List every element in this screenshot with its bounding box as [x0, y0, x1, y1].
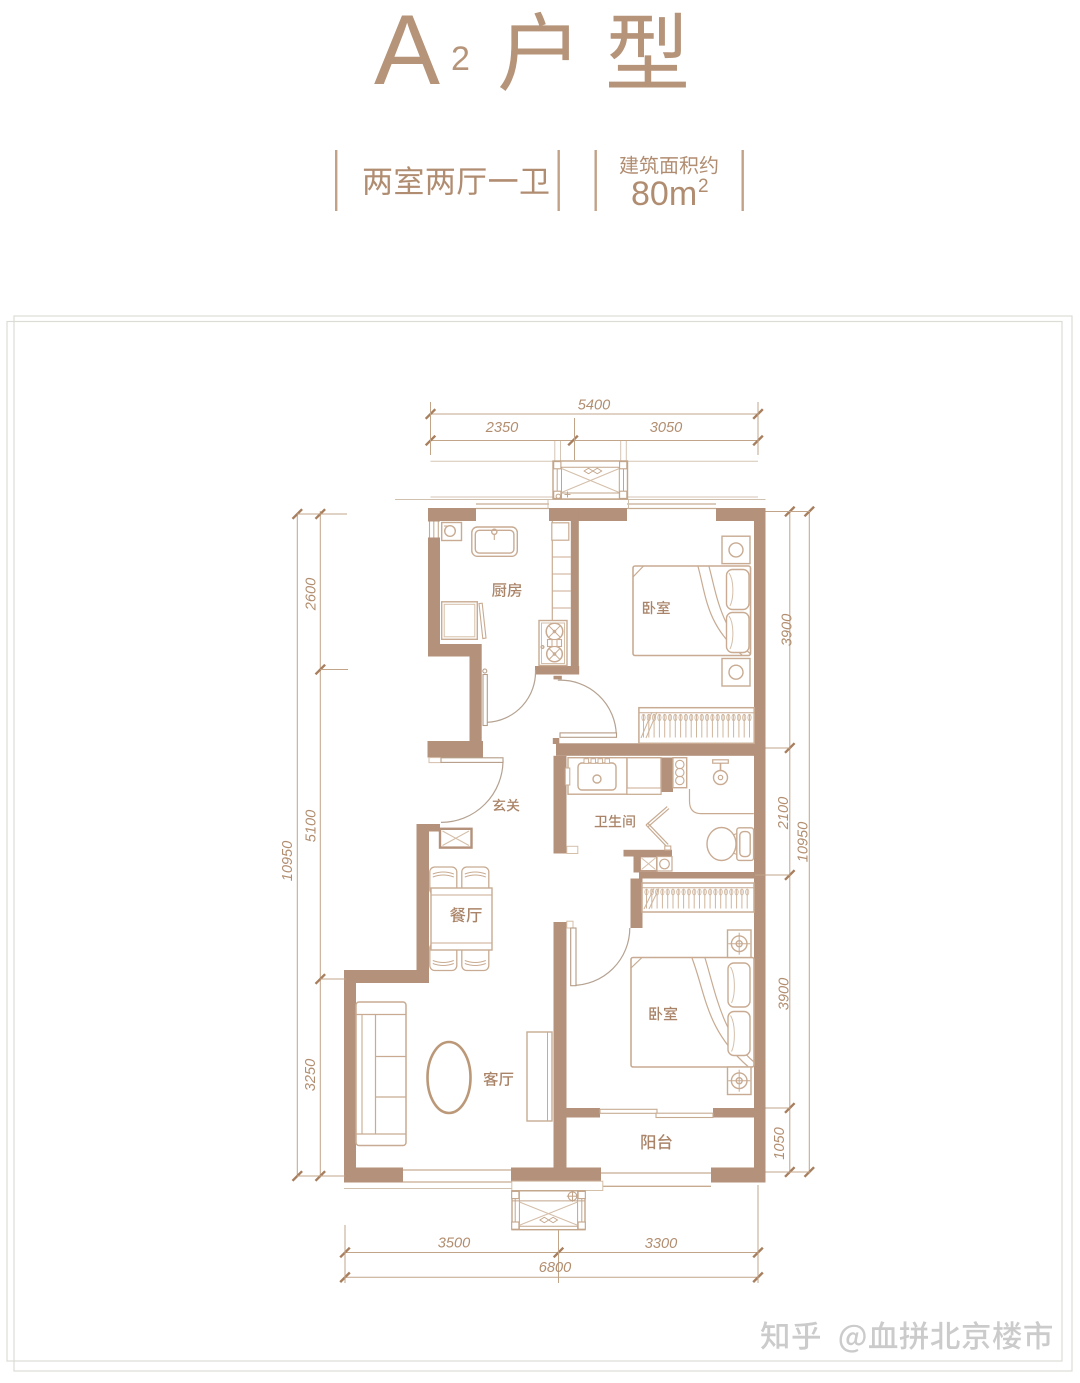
- svg-text:3050: 3050: [650, 420, 682, 436]
- svg-text:2: 2: [451, 40, 470, 78]
- svg-text:10950: 10950: [280, 841, 296, 882]
- svg-text:2350: 2350: [485, 420, 518, 436]
- svg-text:2100: 2100: [776, 797, 792, 830]
- svg-text:1050: 1050: [772, 1127, 788, 1159]
- svg-text:3300: 3300: [645, 1236, 677, 1252]
- svg-text:3500: 3500: [438, 1235, 470, 1251]
- svg-text:2600: 2600: [303, 578, 319, 611]
- svg-text:3900: 3900: [776, 978, 792, 1010]
- svg-text:5100: 5100: [303, 810, 319, 842]
- svg-text:5400: 5400: [578, 397, 610, 413]
- svg-text:10950: 10950: [795, 822, 811, 863]
- svg-text:3900: 3900: [779, 614, 795, 646]
- svg-text:80m: 80m: [631, 175, 697, 213]
- svg-text:3250: 3250: [303, 1059, 319, 1091]
- svg-text:6800: 6800: [539, 1260, 571, 1276]
- svg-text:A: A: [374, 0, 440, 105]
- svg-text:2: 2: [698, 176, 709, 197]
